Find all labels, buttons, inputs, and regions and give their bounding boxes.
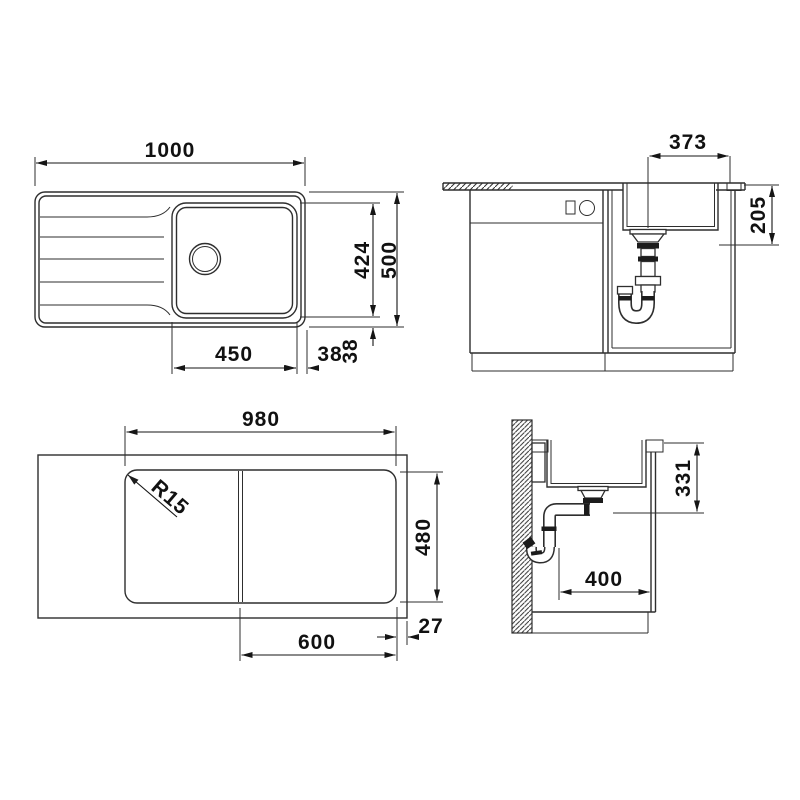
board-width-label: 600: [298, 631, 336, 654]
drain-hole-outer: [190, 244, 221, 275]
pipe-clearance-label: 400: [585, 568, 623, 591]
cabinet-front: [470, 190, 735, 371]
dim-bowl-depth: 205: [719, 185, 779, 245]
drawing-canvas: 1000 424 500 450 38 38: [0, 0, 800, 800]
drain-to-edge-label: 373: [669, 131, 707, 154]
overall-depth-label: 500: [378, 241, 401, 279]
blanco-sink-technical-drawing: 1000 424 500 450 38 38: [0, 0, 800, 800]
dim-edge-offset: 27: [377, 615, 444, 645]
siphon-side: [523, 487, 608, 559]
plinth-side: [532, 612, 648, 633]
top-plan-view: 1000 424 500 450 38 38: [35, 139, 404, 374]
dim-bowl-width: 450: [172, 322, 297, 374]
siphon-front: [618, 230, 667, 318]
bowl-side-inner: [551, 440, 642, 484]
dim-drain-height: 331: [613, 443, 704, 513]
dim-drain-to-edge: 373: [650, 131, 731, 183]
drainboard-grooves: [40, 207, 170, 315]
body-divider: [239, 471, 243, 602]
radius-callout: R15: [128, 475, 193, 520]
appliance-switch-icon: [566, 201, 575, 214]
glass-board-outline: [38, 455, 407, 618]
bowl-section-outer: [623, 183, 718, 230]
corner-radius-label: R15: [147, 475, 194, 519]
dim-pipe-clearance: 400: [559, 548, 650, 600]
countertop-hatch-left: [444, 184, 513, 191]
bowl-depth-label: 205: [747, 196, 770, 234]
counter-section-right: [646, 440, 663, 452]
edge-offset-label: 27: [418, 615, 443, 638]
body-depth-label: 480: [412, 518, 435, 556]
front-section-view: 373 205: [443, 131, 779, 371]
top-view-width-label: 1000: [145, 139, 196, 162]
dim-side-gap: 38: [285, 330, 343, 374]
dim-overall-width: 1000: [35, 139, 305, 186]
wall-batten: [532, 443, 545, 482]
bowl-width-label: 450: [215, 343, 253, 366]
back-gap-label: 38: [339, 338, 362, 363]
side-section-view: 331 400: [512, 420, 704, 633]
plinth: [472, 353, 733, 371]
underside-plan-view: R15 980 480 600 27: [38, 408, 444, 661]
drain-height-label: 331: [672, 459, 695, 497]
bowl-outer-rim: [172, 203, 297, 318]
appliance-knob-icon: [580, 201, 595, 216]
bowl-side-outer: [547, 440, 646, 487]
dim-body-width: 980: [125, 408, 396, 466]
dim-back-gap: 38: [339, 328, 373, 364]
dim-bowl-length: 424: [300, 203, 380, 317]
drain-hole-inner: [193, 247, 218, 272]
bowl-inner-rim: [177, 208, 293, 314]
bowl-length-label: 424: [351, 241, 374, 279]
dim-board-width: 600: [240, 607, 397, 661]
bowl-section-inner: [627, 183, 715, 227]
body-width-label: 980: [242, 408, 280, 431]
wall-section: [512, 420, 532, 633]
